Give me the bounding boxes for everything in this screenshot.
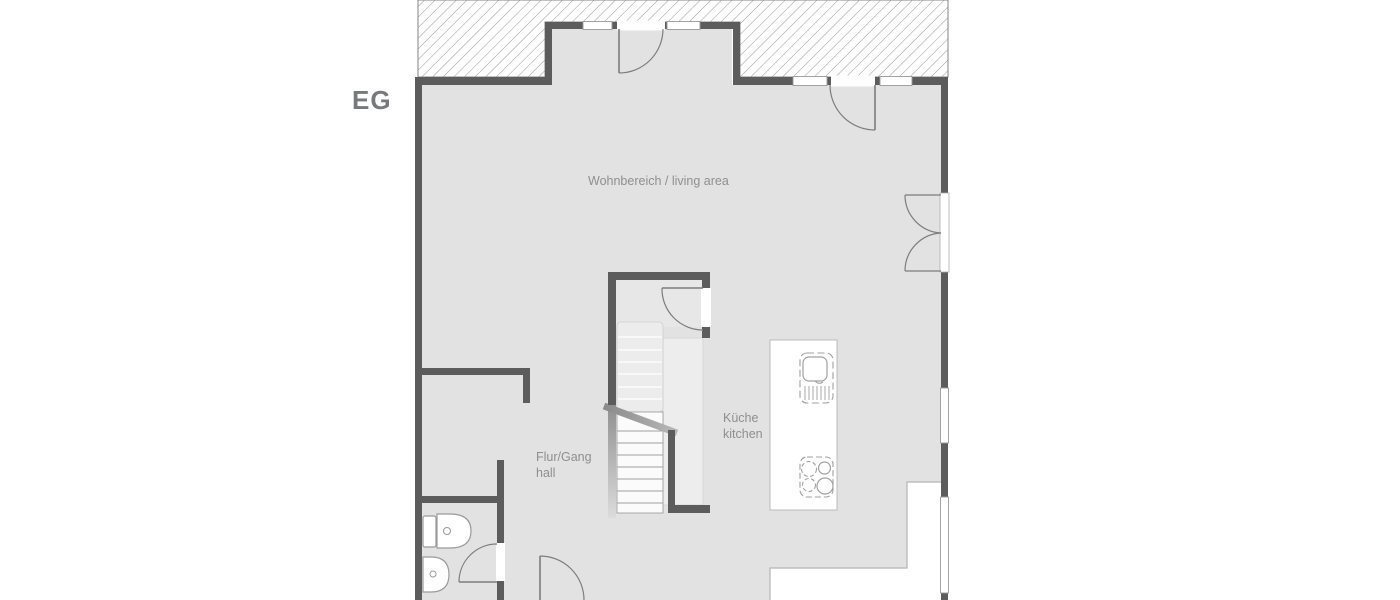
kitchen-island (770, 340, 837, 510)
floor-label: EG (352, 85, 392, 115)
door-opening-wc (496, 543, 505, 581)
wall-stair-bottom (668, 505, 710, 513)
window-symbol-bay-2 (667, 22, 700, 30)
window-symbol-bay-1 (583, 22, 612, 30)
wall-wc-right-lower (497, 581, 504, 600)
window-symbol-right-1 (941, 388, 949, 443)
window-symbol-right-2 (941, 497, 949, 593)
door-opening-vestibule (701, 288, 711, 327)
room-label-kitchen-en: kitchen (723, 427, 763, 441)
wall-stair-right-lower (702, 327, 710, 338)
window-symbol-top-1 (793, 77, 827, 86)
wall-stair-right-upper (702, 272, 710, 288)
toilet-icon (423, 514, 471, 548)
wall-left (415, 77, 422, 600)
wall-wc-top (422, 496, 503, 503)
door-opening-top (831, 76, 875, 87)
door-opening-bay (617, 21, 665, 31)
wall-top-left (415, 77, 552, 85)
wall-stair-top (608, 272, 710, 280)
room-label-living-area: Wohnbereich / living area (588, 174, 729, 188)
washbasin-icon (423, 557, 449, 592)
room-label-hall-de: Flur/Gang (536, 450, 592, 464)
door-opening-right-double (940, 193, 949, 272)
wall-interior-hall-top (422, 368, 530, 375)
wall-bay-left (545, 22, 552, 85)
wall-interior-hall-stub (523, 368, 530, 403)
vestibule-floor (616, 280, 702, 327)
window-symbol-top-2 (880, 77, 912, 86)
stair-left-stringer (608, 405, 616, 518)
room-label-kitchen-de: Küche (723, 411, 758, 425)
floor-plan-canvas: EG Wohnbereich / living area Küche kitch… (0, 0, 1400, 600)
floor-plan-svg: EG Wohnbereich / living area Küche kitch… (0, 0, 1400, 600)
wall-stair-left (608, 272, 616, 405)
room-label-hall-en: hall (536, 466, 555, 480)
wall-bay-right (733, 22, 740, 85)
wall-wc-right-upper (497, 460, 504, 543)
wall-stair-mid (668, 430, 675, 513)
